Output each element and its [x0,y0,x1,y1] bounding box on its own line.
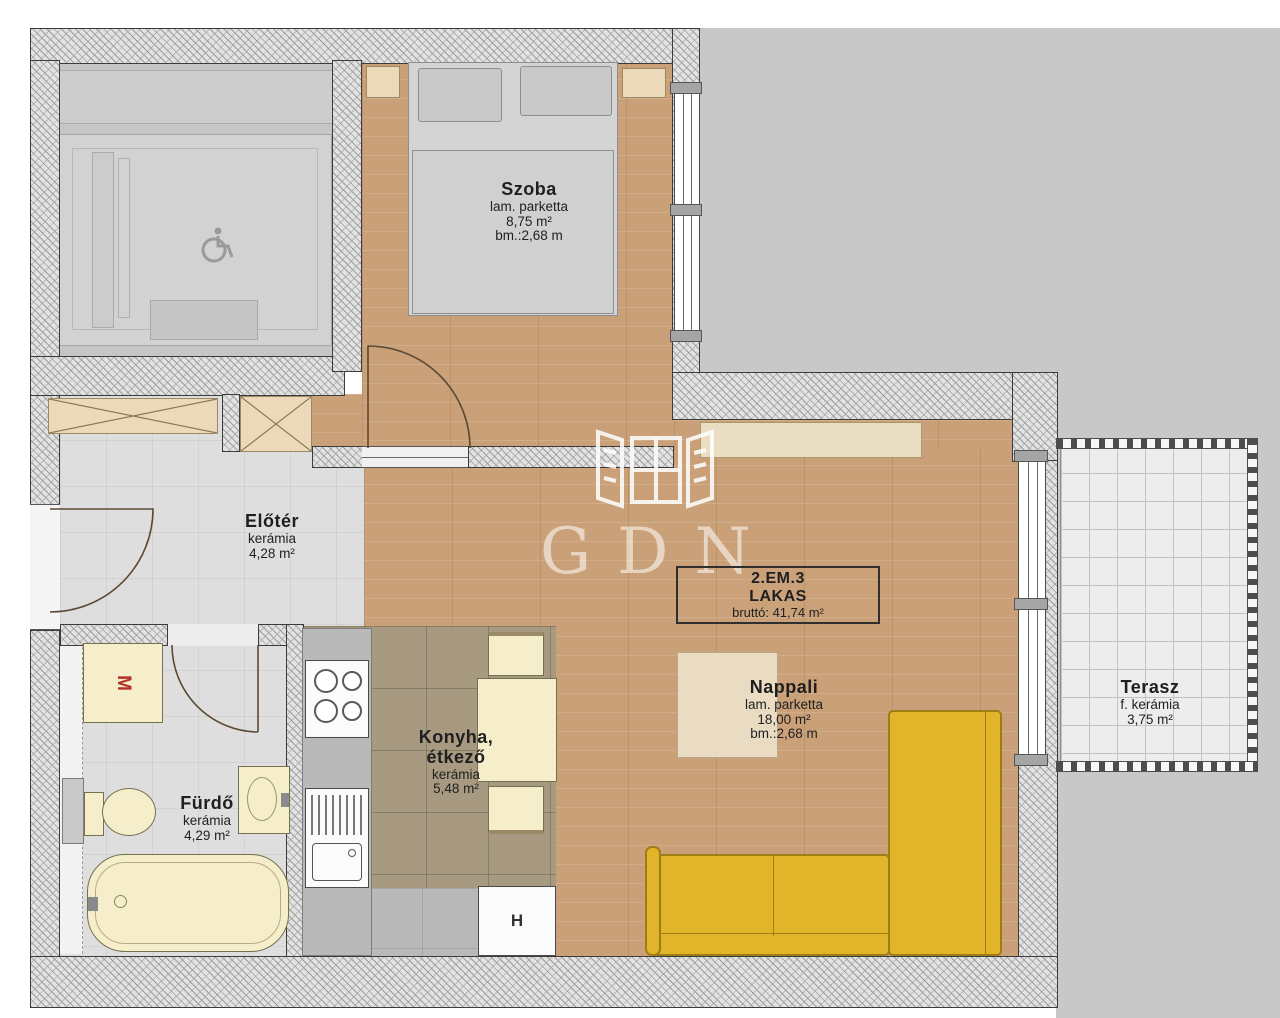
pillow-left [418,68,502,122]
eloter-label: Előtér kerámia 4,28 m² [245,512,299,561]
wall-szoba-bottom [468,446,674,468]
bathroom-sink [238,766,290,834]
unit-number: 2.EM.3 [684,570,872,588]
szoba-door-threshold [362,446,468,468]
wall-bottom [30,956,1058,1008]
sofa-armrest [645,846,661,956]
terasz-door-mullion-bottom [1014,754,1048,766]
adjacent-unit-counter [92,152,114,328]
kitchen-sink [305,788,369,888]
plumbing-fixture [62,778,84,844]
washing-machine: M [83,643,163,723]
szoba-window-mullion-top [670,82,702,94]
dining-chair-top [488,632,544,676]
nappali-label: Nappali lam. parketta 18,00 m² bm.:2,68 … [745,678,823,742]
toilet-bowl [102,788,156,836]
nightstand-left [366,66,400,98]
terasz-railing-top [1056,438,1258,449]
stove [305,660,369,738]
pillow-right [520,66,612,116]
wall-furdo-top-right [258,624,288,646]
wall-adjacent-bottom [30,356,345,396]
wall-corner-block [1012,372,1058,462]
fridge-label: H [511,911,523,931]
adjacent-unit-room-strip [40,70,338,124]
terasz-door-window [1018,456,1046,764]
nightstand-right [622,68,666,98]
wall-left-upper [30,60,60,506]
closet-shaft [240,396,312,452]
unit-type: LAKAS [684,588,872,606]
sofa-chaise [888,710,1002,956]
wall-closet-pillar [222,394,240,452]
konyha-label: Konyha, étkező kerámia 5,48 m² [419,728,494,797]
sofa-seats [652,854,890,956]
wall-door-jamb [312,446,364,468]
washing-machine-label: M [112,675,134,691]
szoba-floor-nook [310,394,362,448]
adjacent-unit-furniture [150,300,258,340]
terasz-door-mullion-top [1014,450,1048,462]
terasz-door-mullion-mid [1014,598,1048,610]
wheelchair-icon [196,224,238,266]
bathtub [87,854,289,952]
szoba-label: Szoba lam. parketta 8,75 m² bm.:2,68 m [490,180,568,244]
terasz-railing-right [1247,438,1258,772]
floor-plan: H M [0,0,1280,1018]
wall-nappali-top [672,372,1040,420]
wardrobe [48,398,218,434]
window-sill-strip [700,422,922,458]
szoba-window-mullion-mid [670,204,702,216]
furdo-door-opening [168,624,258,646]
entry-door-opening [30,504,60,630]
unit-area: bruttó: 41,74 m² [684,606,872,621]
wall-szoba-left [332,60,362,372]
furdo-label: Fürdő kerámia 4,29 m² [180,794,234,843]
dining-chair-bottom [488,786,544,834]
adjacent-unit-counter-2 [118,158,130,318]
terasz-label: Terasz f. kerámia 3,75 m² [1120,678,1179,727]
wall-left-lower [30,630,60,958]
wall-top [30,28,692,64]
toilet-tank [84,792,104,836]
szoba-window-mullion-bottom [670,330,702,342]
terasz-railing-bottom [1056,761,1258,772]
unit-label-box: 2.EM.3 LAKAS bruttó: 41,74 m² [676,566,880,624]
outside-area-top-right [674,28,1280,374]
fridge: H [478,886,556,956]
